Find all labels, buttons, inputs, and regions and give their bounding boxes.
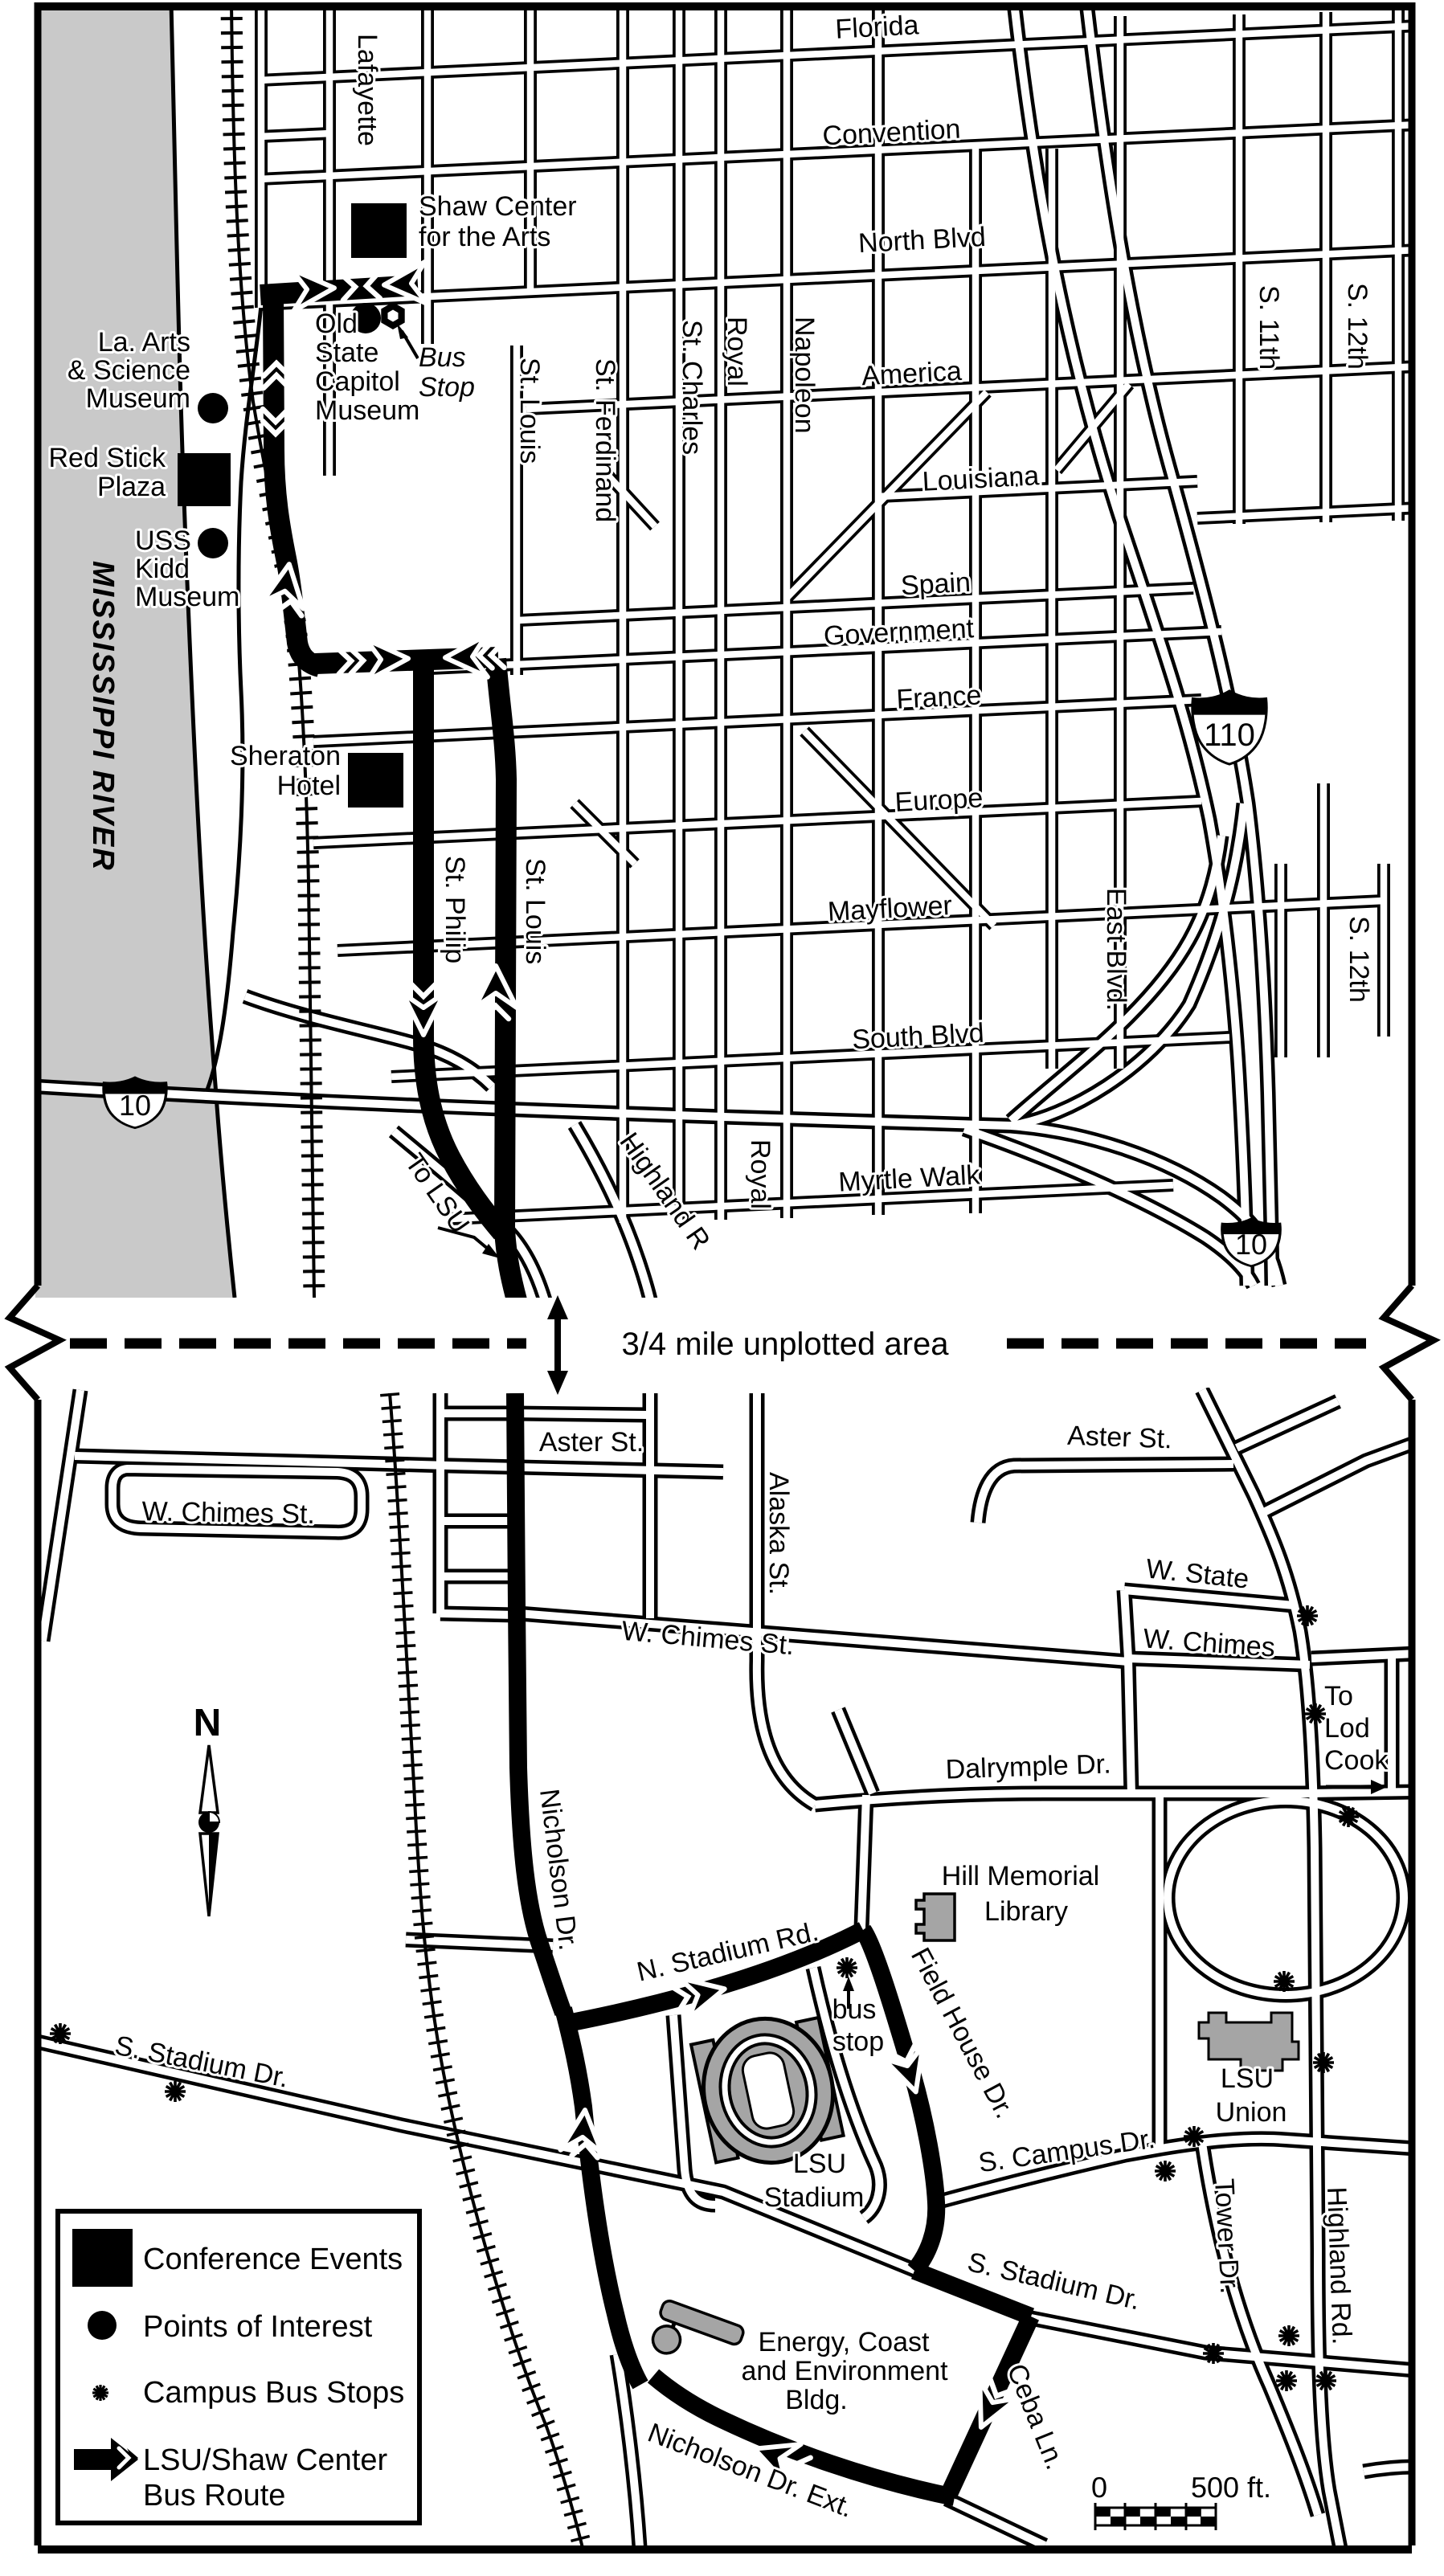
svg-text:Hotel: Hotel (277, 771, 341, 801)
svg-text:France: France (896, 680, 983, 714)
svg-text:Louisiana: Louisiana (922, 460, 1040, 497)
svg-text:Alaska St.: Alaska St. (763, 1472, 794, 1595)
svg-text:Conference Events: Conference Events (143, 2243, 403, 2276)
svg-text:America: America (861, 356, 963, 391)
svg-text:Sheraton: Sheraton (230, 741, 341, 771)
svg-text:Hill Memorial: Hill Memorial (942, 1861, 1099, 1891)
svg-text:St. Charles: St. Charles (677, 320, 707, 455)
svg-text:Stop: Stop (419, 372, 475, 403)
svg-text:Napoleon: Napoleon (789, 317, 820, 434)
svg-text:La. Arts: La. Arts (98, 327, 190, 358)
svg-text:Florida: Florida (835, 10, 920, 44)
svg-text:Shaw Center: Shaw Center (419, 191, 577, 222)
svg-text:Plaza: Plaza (97, 472, 166, 502)
svg-text:Tower Dr.: Tower Dr. (1209, 2177, 1245, 2294)
svg-text:Energy, Coast: Energy, Coast (759, 2327, 930, 2357)
svg-text:Royal: Royal (722, 317, 752, 386)
svg-text:S. 12th: S. 12th (1344, 916, 1374, 1003)
svg-text:State: State (315, 337, 378, 368)
svg-text:500 ft.: 500 ft. (1191, 2471, 1271, 2504)
svg-text:Royal: Royal (745, 1139, 775, 1209)
svg-text:Bldg.: Bldg. (785, 2385, 848, 2415)
svg-text:Bus Route: Bus Route (143, 2479, 285, 2513)
svg-text:To: To (1324, 1681, 1353, 1711)
svg-text:& Science: & Science (67, 355, 190, 386)
svg-text:Bus: Bus (419, 342, 466, 373)
svg-text:LSU/Shaw Center: LSU/Shaw Center (143, 2443, 387, 2477)
svg-text:Kidd: Kidd (135, 554, 190, 584)
svg-text:St. Louis: St. Louis (520, 858, 550, 964)
svg-text:Museum: Museum (135, 582, 239, 612)
svg-text:St. Louis: St. Louis (514, 358, 545, 464)
svg-text:Lafayette: Lafayette (352, 34, 382, 146)
svg-text:Stadium: Stadium (764, 2182, 865, 2213)
svg-text:Mayflower: Mayflower (827, 890, 953, 927)
svg-text:Aster St.: Aster St. (539, 1427, 644, 1458)
svg-text:N: N (194, 1702, 222, 1744)
svg-text:10: 10 (1235, 1228, 1267, 1261)
svg-text:Lod: Lod (1324, 1713, 1370, 1744)
svg-text:Union: Union (1216, 2097, 1287, 2128)
svg-text:Campus Bus Stops: Campus Bus Stops (143, 2376, 404, 2410)
svg-text:Aster St.: Aster St. (1067, 1421, 1173, 1455)
svg-text:110: 110 (1204, 718, 1255, 753)
svg-text:10: 10 (119, 1089, 151, 1122)
svg-text:Museum: Museum (315, 395, 419, 426)
svg-text:Highland Rd.: Highland Rd. (1321, 2186, 1357, 2345)
svg-text:Capitol: Capitol (315, 366, 400, 397)
svg-text:USS: USS (135, 525, 191, 556)
svg-text:S. 11th: S. 11th (1254, 285, 1284, 370)
svg-text:Cook: Cook (1324, 1745, 1389, 1776)
svg-text:S. 12th: S. 12th (1342, 283, 1372, 370)
svg-text:St. Philip: St. Philip (440, 856, 470, 963)
svg-text:Europe: Europe (894, 783, 984, 818)
svg-text:Museum: Museum (86, 383, 190, 414)
svg-text:St. Ferdinand: St. Ferdinand (590, 358, 620, 522)
svg-text:3/4 mile unplotted area: 3/4 mile unplotted area (622, 1327, 950, 1362)
svg-text:and Environment: and Environment (741, 2356, 948, 2386)
svg-text:for the Arts: for the Arts (419, 222, 550, 252)
svg-text:stop: stop (832, 2026, 884, 2057)
svg-text:MISSISSIPPI RIVER: MISSISSIPPI RIVER (86, 561, 120, 872)
svg-text:Points of Interest: Points of Interest (143, 2310, 373, 2344)
svg-text:bus: bus (832, 1994, 877, 2025)
svg-text:W. Chimes St.: W. Chimes St. (141, 1496, 315, 1530)
svg-text:Old: Old (315, 309, 358, 339)
svg-text:LSU: LSU (1221, 2063, 1274, 2094)
svg-text:East Blvd.: East Blvd. (1101, 888, 1131, 1011)
svg-text:Spain: Spain (900, 567, 972, 601)
svg-text:Dalrymple Dr.: Dalrymple Dr. (945, 1748, 1111, 1785)
svg-text:0: 0 (1091, 2471, 1107, 2504)
svg-text:LSU: LSU (793, 2149, 846, 2179)
svg-text:Red Stick: Red Stick (49, 443, 166, 473)
svg-text:Library: Library (984, 1896, 1068, 1927)
